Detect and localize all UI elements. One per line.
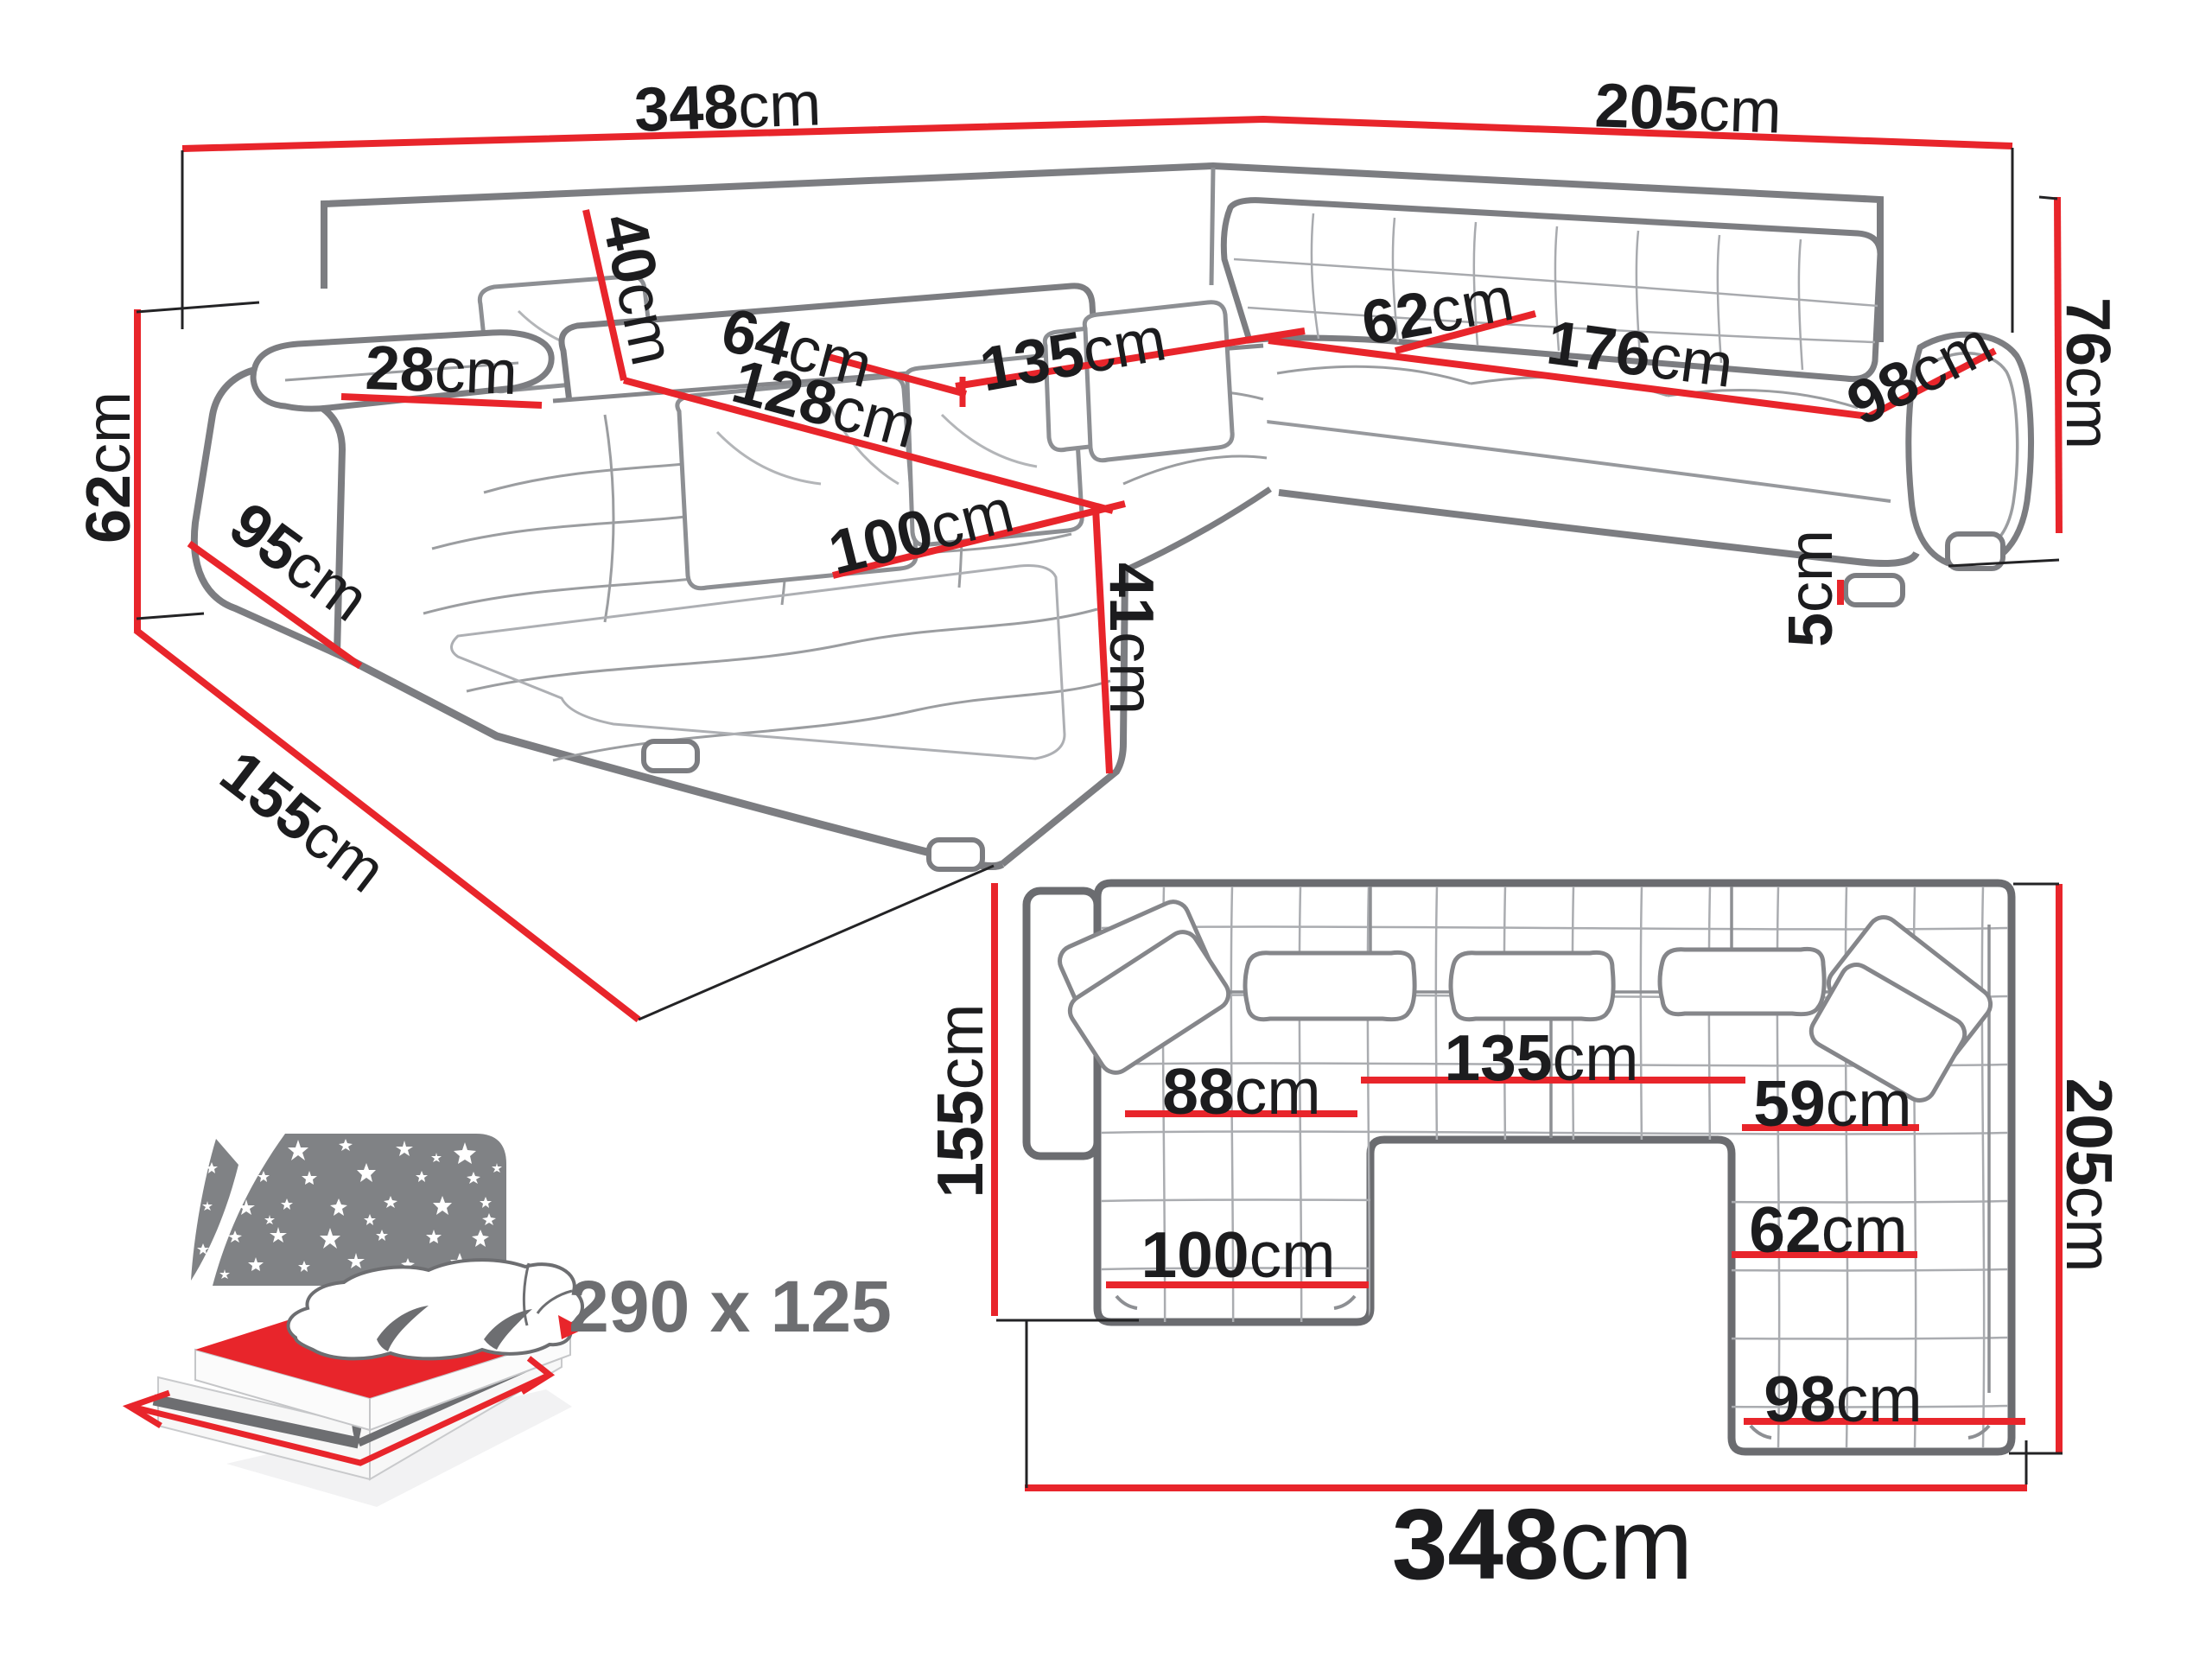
svg-text:155cm: 155cm (924, 1003, 996, 1198)
svg-text:28cm: 28cm (364, 334, 518, 408)
svg-text:62cm: 62cm (74, 391, 143, 543)
svg-text:348cm: 348cm (1392, 1488, 1693, 1600)
svg-text:205cm: 205cm (2053, 1077, 2126, 1272)
svg-text:41cm: 41cm (1096, 563, 1166, 715)
svg-text:59cm: 59cm (1753, 1067, 1911, 1140)
svg-text:290 x 125: 290 x 125 (569, 1266, 892, 1347)
svg-text:62cm: 62cm (1749, 1193, 1907, 1266)
svg-text:76cm: 76cm (2053, 297, 2122, 449)
svg-text:88cm: 88cm (1162, 1055, 1320, 1128)
svg-text:100cm: 100cm (1141, 1218, 1335, 1291)
svg-text:348cm: 348cm (633, 69, 823, 144)
svg-text:98cm: 98cm (1764, 1363, 1922, 1435)
svg-text:135cm: 135cm (1444, 1021, 1638, 1094)
svg-text:5cm: 5cm (1777, 530, 1846, 647)
svg-text:205cm: 205cm (1593, 71, 1783, 146)
